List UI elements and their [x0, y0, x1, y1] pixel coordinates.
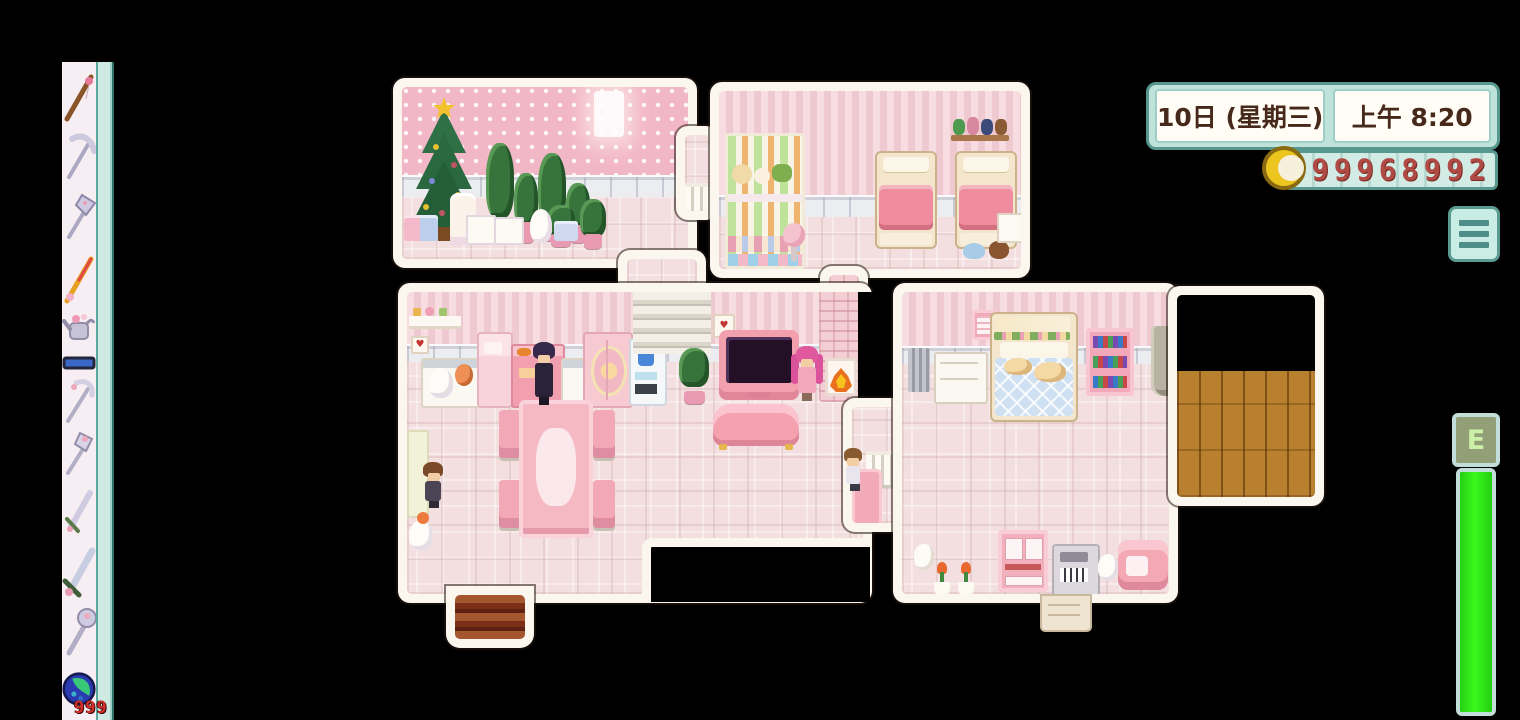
pink-couch[interactable]	[713, 404, 799, 446]
dark-doorway	[858, 292, 894, 404]
room-cutout	[642, 538, 870, 602]
toy-bear-brown	[989, 241, 1009, 259]
window-light	[594, 91, 624, 137]
toddler-character[interactable]	[842, 448, 864, 494]
entry-steps[interactable]	[455, 595, 525, 639]
time-display: 上午 8:20	[1333, 89, 1491, 143]
gift-boxes	[404, 215, 438, 241]
toolbar-slot-tool-pink[interactable]	[62, 426, 96, 482]
plush-shelf	[951, 111, 1009, 141]
outside-nightstand	[1040, 594, 1092, 632]
energy-label: E	[1452, 413, 1500, 467]
toolbar-slot-fishing-pole[interactable]	[62, 66, 96, 128]
toolbar-slot-axe[interactable]	[62, 188, 96, 246]
master-bed[interactable]	[990, 312, 1078, 422]
toolbar-slot-scythe[interactable]	[62, 374, 96, 430]
gold-coin-icon	[1260, 144, 1308, 192]
room-wooden-annex	[1168, 286, 1324, 506]
dining-chair[interactable]	[593, 480, 615, 528]
dining-chair[interactable]	[499, 410, 521, 458]
bunny-plush	[1098, 554, 1118, 580]
loveseat[interactable]	[1118, 540, 1168, 590]
dining-chair[interactable]	[593, 410, 615, 458]
flower-plush	[455, 364, 473, 386]
lattice-crate	[466, 215, 496, 245]
tulip-pot	[956, 562, 976, 594]
pink-wardrobe[interactable]	[583, 332, 633, 408]
radiator	[908, 348, 930, 392]
small-cabinet	[997, 213, 1021, 243]
dining-table[interactable]	[519, 400, 593, 538]
menu-button[interactable]	[1448, 206, 1500, 262]
toolbar-slot-fishing-rod-colorful[interactable]	[62, 248, 96, 310]
energy-bar	[1456, 468, 1496, 716]
coat-stand	[914, 544, 934, 570]
entry-porch[interactable]	[446, 586, 534, 648]
dark-upper-wall	[1177, 295, 1315, 371]
stone-pillar	[1151, 326, 1169, 396]
toolbar-slot-sword[interactable]	[62, 482, 96, 540]
toy-bunny-blue	[963, 243, 985, 259]
gold-amount: 99968992	[1311, 153, 1495, 187]
child-character[interactable]	[421, 462, 445, 512]
fireplace[interactable]	[819, 292, 863, 402]
sewing-machine[interactable]	[1052, 544, 1100, 594]
toolbar-slot-pickaxe[interactable]	[62, 128, 96, 186]
dresser[interactable]	[934, 352, 988, 404]
bunny-plush	[409, 520, 433, 550]
fire-flame	[828, 368, 854, 394]
sleeping-cat[interactable]	[1004, 358, 1032, 375]
toolbar-slot-galaxy-sword[interactable]	[62, 540, 96, 602]
energy-fill	[1460, 472, 1492, 712]
gold-panel: 99968992	[1284, 150, 1498, 190]
lattice-crate	[494, 217, 524, 245]
wall-shelf	[409, 316, 461, 329]
toolbar	[62, 62, 114, 720]
toolbar-slot-watering-can[interactable]	[62, 304, 96, 354]
room-kids-bedroom	[710, 82, 1030, 278]
bookshelf[interactable]	[1086, 328, 1134, 396]
pink-candle-box	[554, 221, 578, 241]
television[interactable]	[719, 330, 799, 400]
dining-chair[interactable]	[499, 480, 521, 528]
datetime-panel: 10日 (星期三) 上午 8:20	[1146, 82, 1500, 150]
wood-plank-floor	[1177, 371, 1315, 497]
tulip-pot	[932, 562, 952, 594]
potted-plant	[679, 348, 709, 404]
display-cabinet[interactable]	[998, 530, 1048, 592]
room-plant-parlor	[393, 78, 697, 268]
game-viewport: ♥	[0, 0, 1520, 720]
fridge[interactable]	[477, 332, 513, 408]
snow-plush	[530, 209, 552, 243]
room-master-bedroom	[893, 283, 1178, 603]
sleeping-cat[interactable]	[1034, 362, 1066, 382]
pink-bow-decor: ♥	[411, 336, 429, 354]
toolbar-slot-club[interactable]	[62, 602, 96, 662]
toolbar-slot-hoe[interactable]	[62, 350, 96, 376]
stair-railing	[685, 183, 709, 211]
white-cat[interactable]	[429, 368, 453, 398]
spouse-pink-hair[interactable]	[794, 346, 820, 412]
player-character[interactable]	[531, 342, 557, 414]
item-count-badge: 999	[74, 698, 108, 718]
potted-plant	[580, 199, 606, 249]
hamburger-menu-icon	[1459, 220, 1489, 226]
kid-bed[interactable]	[875, 151, 937, 249]
staircase[interactable]	[633, 292, 711, 354]
pink-lamp	[781, 223, 807, 261]
date-display: 10日 (星期三)	[1155, 89, 1325, 143]
